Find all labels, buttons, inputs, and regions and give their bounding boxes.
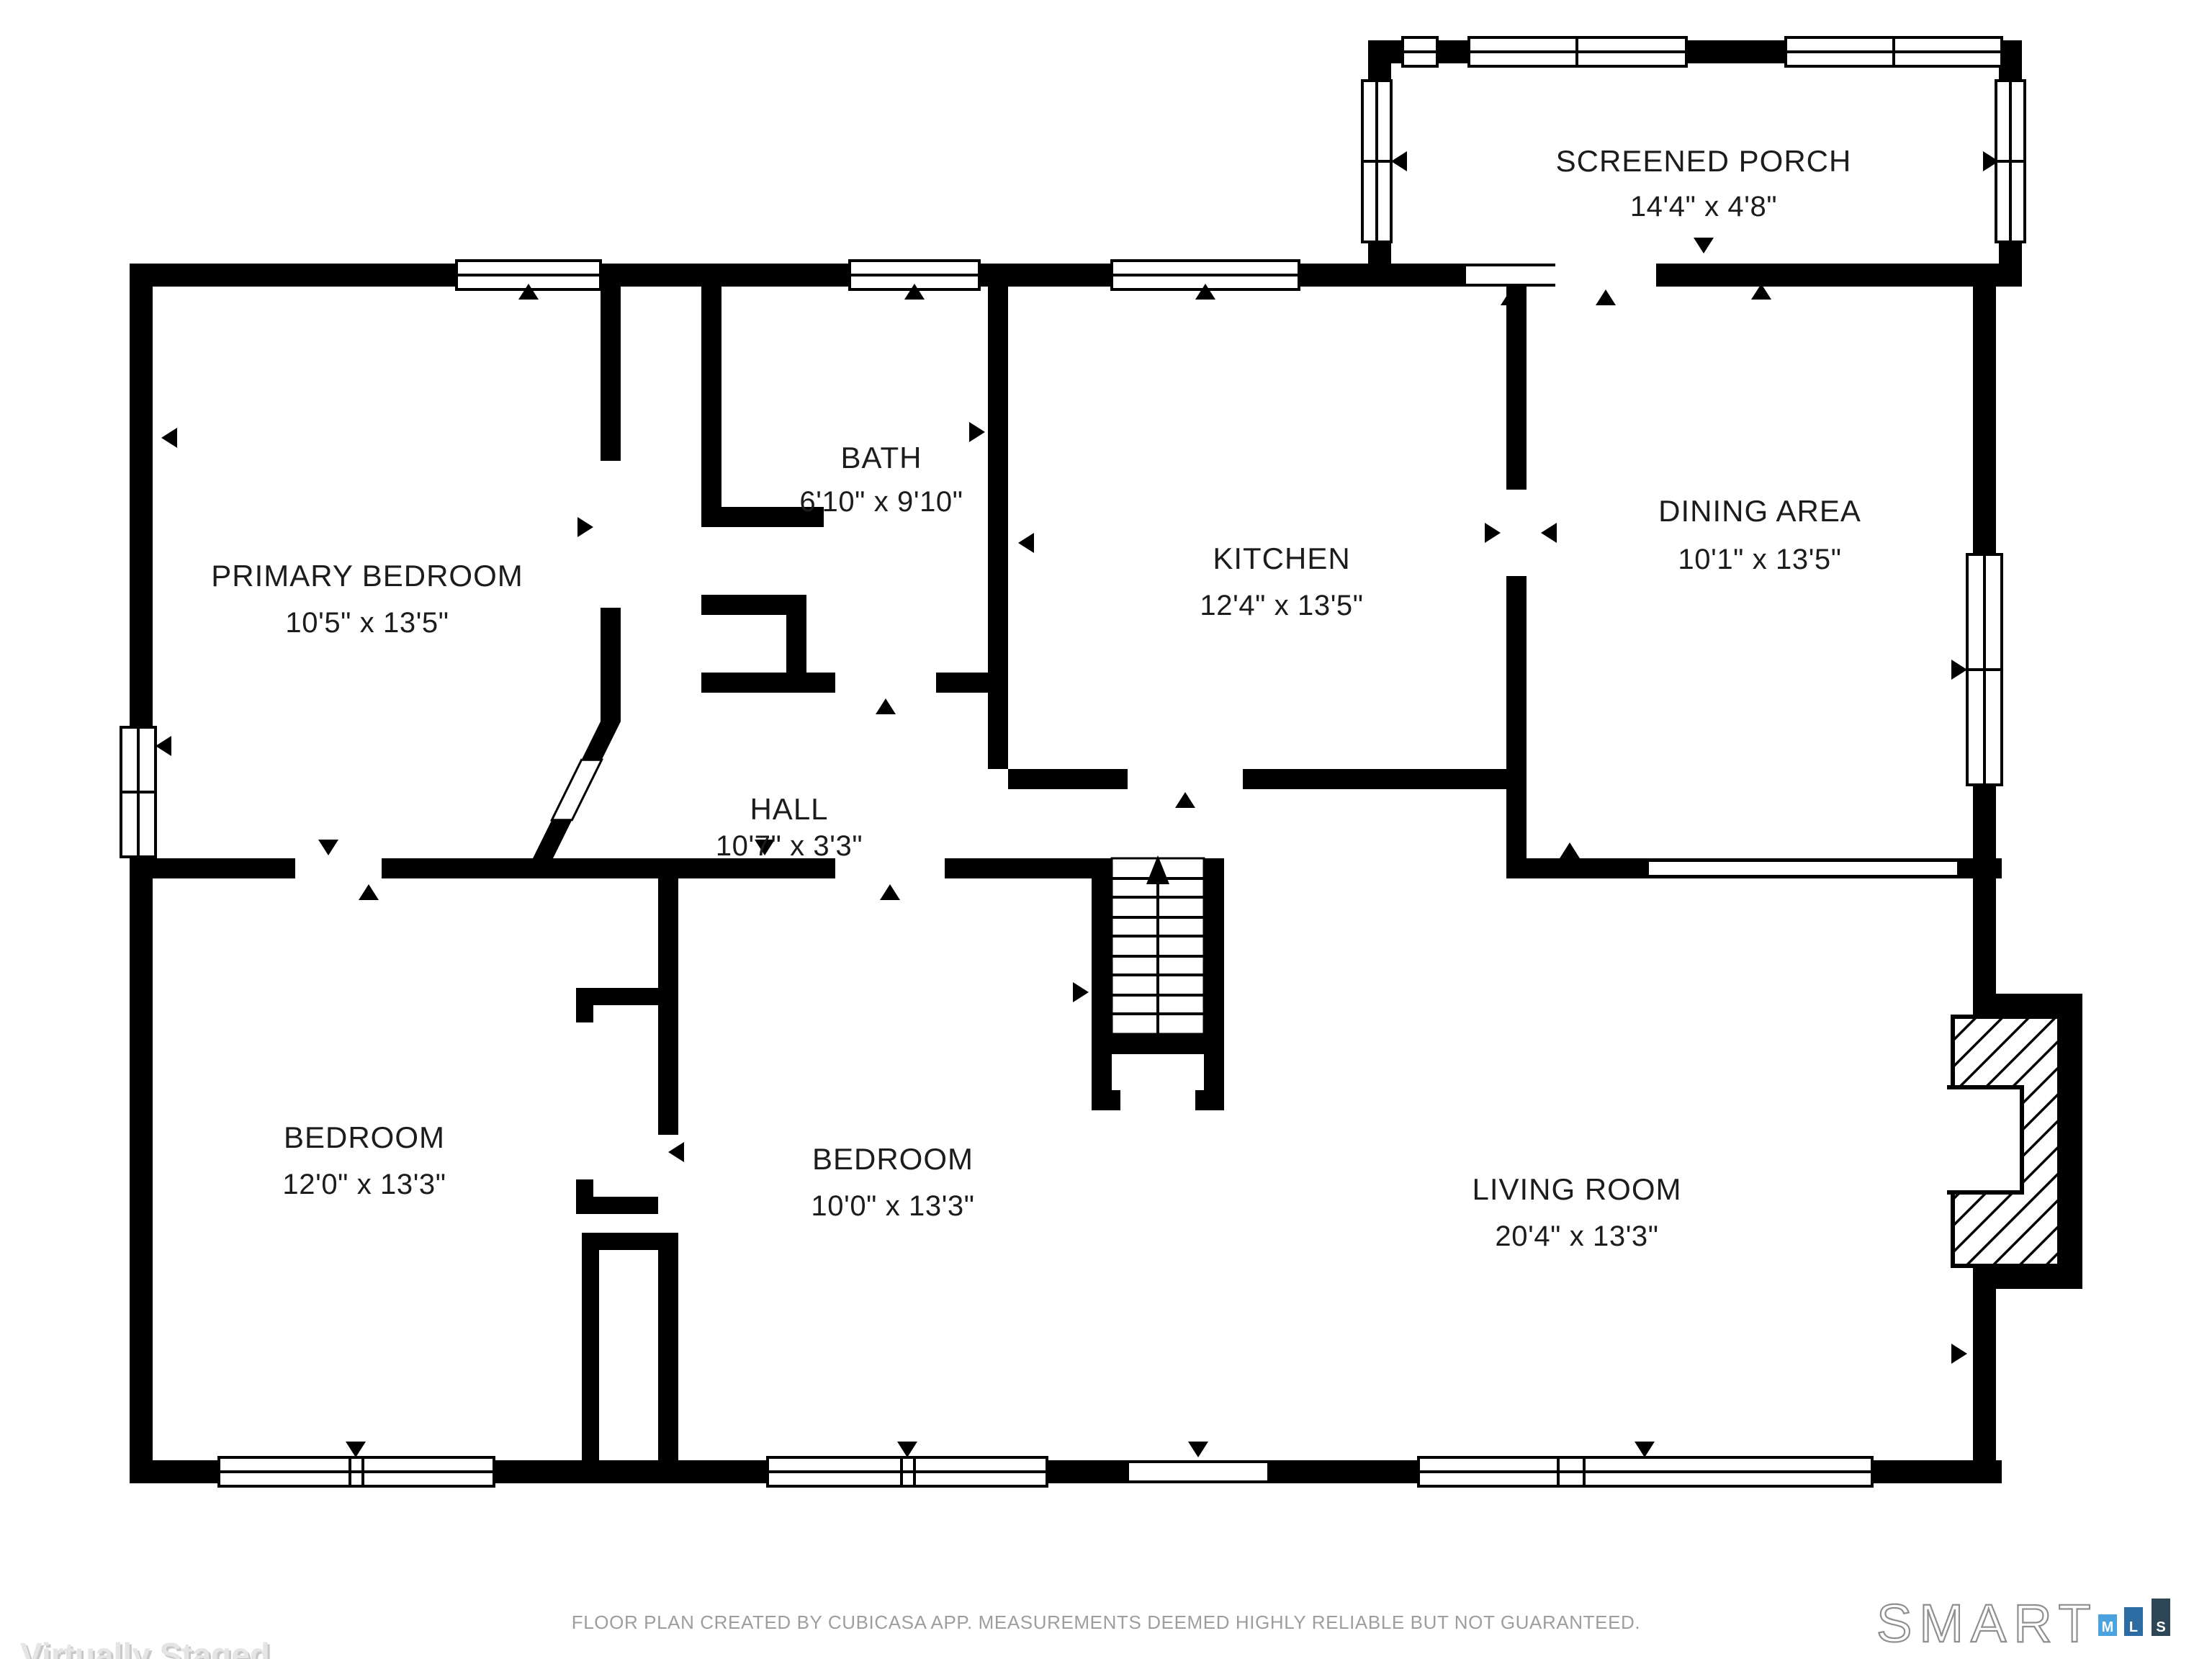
window-porch-top-2 (1786, 37, 2002, 66)
room-label-living-room: LIVING ROOM (1472, 1172, 1681, 1206)
room-dims-bath: 6'10" x 9'10" (799, 486, 963, 518)
door-marker-icon (1560, 842, 1580, 858)
stairs-up-arrow-icon (1146, 855, 1169, 884)
room-label-hall: HALL (750, 792, 828, 826)
door-marker-icon (1596, 289, 1616, 305)
door-marker-icon (318, 840, 338, 855)
door-marker-icon (1073, 982, 1089, 1002)
window-marker-icon (1391, 151, 1407, 171)
window-porch-top-small (1403, 37, 1437, 66)
room-label-bedroom-middle: BEDROOM (812, 1142, 974, 1176)
brand-word: SMART (1876, 1593, 2098, 1653)
window-bedroom-left (219, 1457, 494, 1486)
window-left-wall (121, 727, 156, 857)
room-dims-hall: 10'7" x 3'3" (716, 830, 863, 862)
window-dining-right (1967, 554, 2002, 785)
window-bedroom-middle (768, 1457, 1047, 1486)
door-marker-icon (1188, 1442, 1208, 1457)
door-marker-icon (876, 698, 896, 714)
door-marker-icon (880, 884, 900, 900)
watermark: Virtually Staged (20, 1636, 270, 1659)
fireplace (1947, 994, 2082, 1289)
window-marker-icon (1951, 660, 1967, 680)
room-label-kitchen: KITCHEN (1213, 541, 1350, 575)
window-porch-top-1 (1469, 37, 1686, 66)
disclaimer-text: FLOOR PLAN CREATED BY CUBICASA APP. MEAS… (572, 1611, 1641, 1633)
room-label-screened-porch: SCREENED PORCH (1556, 144, 1852, 178)
room-labels: SCREENED PORCH 14'4" x 4'8" PRIMARY BEDR… (211, 144, 1861, 1252)
room-dims-dining-area: 10'1" x 13'5" (1678, 544, 1841, 575)
window-marker-icon (897, 1442, 917, 1457)
door-markers (156, 151, 1999, 1457)
window-marker-icon (161, 428, 177, 448)
door-marker-icon (577, 517, 593, 537)
window-porch-left (1362, 81, 1391, 242)
room-dims-bedroom-middle: 10'0" x 13'3" (811, 1190, 974, 1222)
floor-plan-canvas: SCREENED PORCH 14'4" x 4'8" PRIMARY BEDR… (0, 0, 2212, 1659)
room-dims-kitchen: 12'4" x 13'5" (1200, 590, 1363, 621)
smartmls-logo: SMART M L S (1876, 1593, 2170, 1653)
door-marker-icon (969, 422, 985, 442)
room-label-dining-area: DINING AREA (1658, 494, 1861, 528)
brand-letter-m: M (2102, 1619, 2114, 1635)
door-marker-icon (1951, 1344, 1967, 1364)
room-dims-bedroom-left: 12'0" x 13'3" (282, 1169, 446, 1200)
room-label-bedroom-left: BEDROOM (284, 1120, 445, 1154)
floor-plan-page: SCREENED PORCH 14'4" x 4'8" PRIMARY BEDR… (0, 0, 2212, 1659)
window-marker-icon (346, 1442, 366, 1457)
window-marker-icon (156, 736, 171, 756)
footer: Virtually Staged Virtually Staged FLOOR … (20, 1593, 2170, 1659)
window-porch-right (1996, 81, 2025, 242)
door-marker-icon (1694, 238, 1714, 253)
windows (121, 37, 2025, 1486)
door-marker-icon (668, 1142, 684, 1162)
walls (130, 40, 2022, 1483)
brand-letter-l: L (2129, 1619, 2138, 1635)
door-marker-icon (1485, 523, 1501, 543)
room-dims-screened-porch: 14'4" x 4'8" (1630, 191, 1777, 222)
firebox (1947, 1087, 2022, 1192)
door-marker-icon (1541, 523, 1557, 543)
room-label-bath: BATH (841, 441, 922, 475)
room-dims-living-room: 20'4" x 13'3" (1495, 1220, 1658, 1252)
door-marker-icon (1018, 533, 1034, 553)
room-dims-primary-bedroom: 10'5" x 13'5" (285, 607, 449, 639)
door-marker-icon (1175, 792, 1195, 808)
window-living-bottom (1419, 1457, 1872, 1486)
staircase (1112, 855, 1204, 1034)
brand-letter-s: S (2156, 1619, 2165, 1635)
room-label-primary-bedroom: PRIMARY BEDROOM (211, 559, 523, 593)
door-marker-icon (359, 884, 379, 900)
window-marker-icon (1635, 1442, 1655, 1457)
